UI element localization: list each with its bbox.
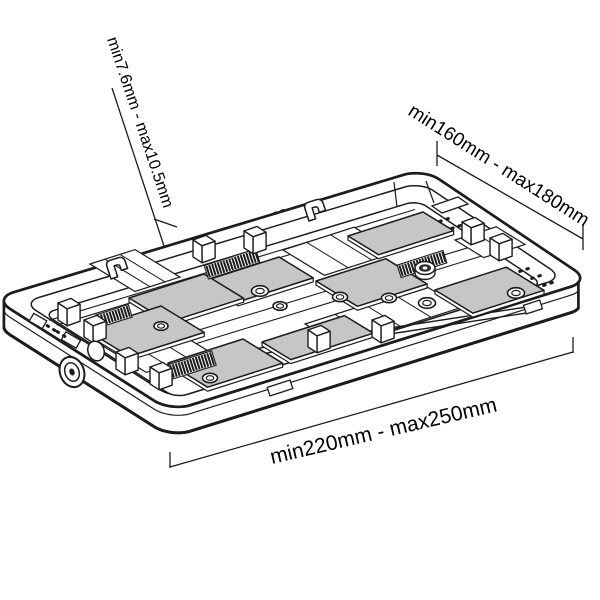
svg-text:min220mm - max250mm: min220mm - max250mm bbox=[268, 393, 499, 468]
svg-text:min7.6mm - max10.5mm: min7.6mm - max10.5mm bbox=[103, 35, 177, 210]
